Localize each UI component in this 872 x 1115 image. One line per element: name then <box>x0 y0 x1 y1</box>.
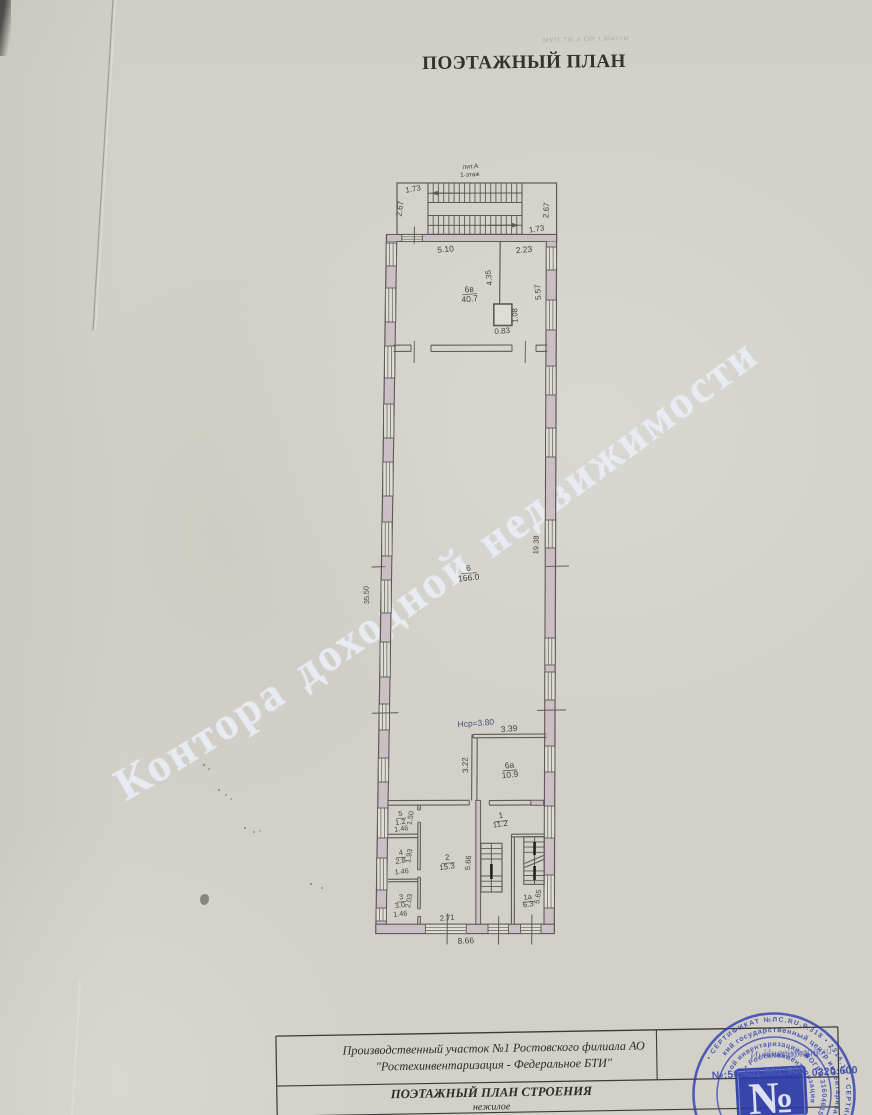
svg-text:0320:600: 0320:600 <box>811 1064 858 1079</box>
